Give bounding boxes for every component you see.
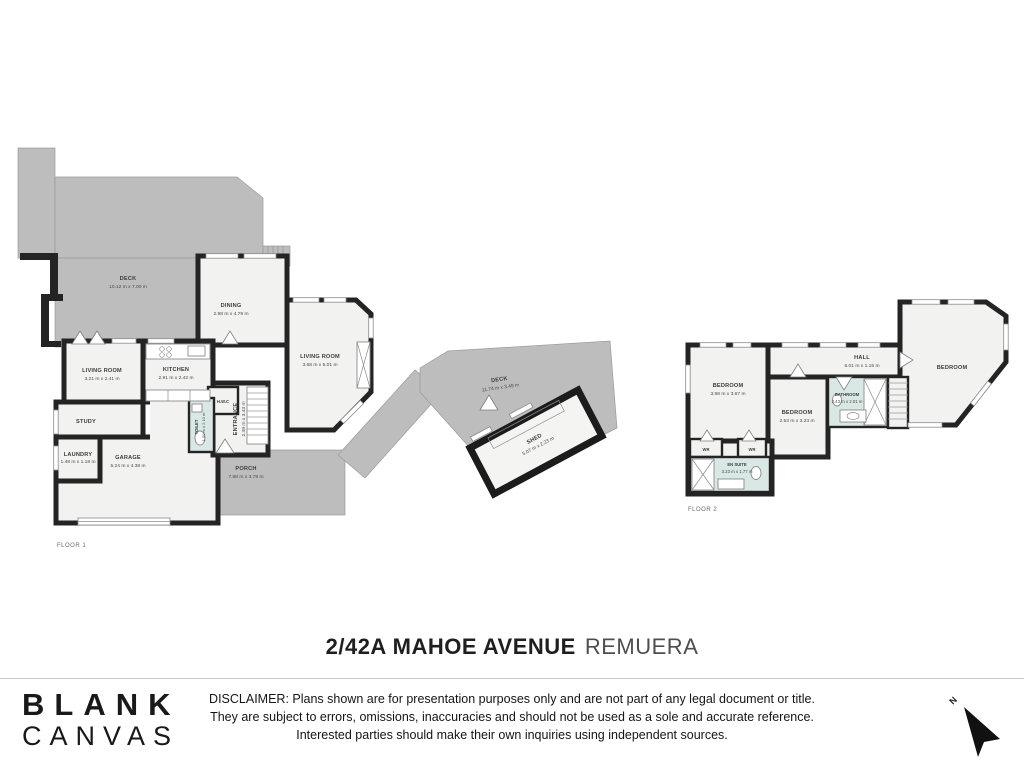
- entrance-dims: 2.49 m x 3.43 m: [241, 401, 247, 436]
- wr1-label: WR: [703, 447, 710, 452]
- fireplace: [357, 342, 370, 388]
- room-laundry: [56, 437, 100, 481]
- logo-line1: BLANK: [22, 689, 181, 720]
- toilet-label: TOILET: [194, 419, 199, 434]
- address-suburb: REMUERA: [585, 634, 699, 659]
- porch-label: PORCH: [235, 466, 256, 472]
- bathroom-dims: 2.43 m x 2.01 m: [832, 399, 863, 404]
- deck-label: DECK: [120, 276, 137, 282]
- bedroom-mid-label: BEDROOM: [782, 410, 813, 416]
- floor2-stairs: [888, 377, 908, 428]
- toilet-dims: 1.00 m x 2.10 m: [201, 412, 206, 441]
- entrance-label: ENTRANCE: [233, 403, 239, 436]
- garage-label: GARAGE: [115, 455, 141, 461]
- kitchen-label: KITCHEN: [163, 367, 189, 373]
- garage-door: [78, 518, 170, 525]
- laundry-label: LAUNDRY: [64, 452, 93, 458]
- bathroom-label: BATHROOM: [835, 392, 860, 397]
- wr2-label: WR: [749, 447, 756, 452]
- ensuite-dims: 3.23 m x 1.77 m: [722, 469, 753, 474]
- deck-dims: 10.12 m x 7.00 m: [109, 284, 147, 290]
- living-left-dims: 3.21 m x 2.41 m: [84, 376, 119, 382]
- living-right-label: LIVING ROOM: [300, 354, 340, 360]
- bedroom-right-label: BEDROOM: [937, 365, 968, 371]
- room-dining: [198, 256, 287, 345]
- study-label: STUDY: [76, 419, 96, 425]
- floor2-title: FLOOR 2: [688, 507, 717, 513]
- floorplan-sheet: DECK 10.12 m x 7.00 m DINING 2.98 m x 4.…: [0, 0, 1024, 768]
- hwc-label: H.W.C: [217, 399, 229, 404]
- bedroom-left-label: BEDROOM: [713, 383, 744, 389]
- living-left-label: LIVING ROOM: [82, 368, 122, 374]
- ensuite-label: EN SUITE: [727, 462, 747, 467]
- disclaimer-line2: They are subject to errors, omissions, i…: [192, 709, 832, 727]
- kitchen-dims: 2.91 m x 2.42 m: [158, 375, 193, 381]
- dining-dims: 2.98 m x 4.79 m: [213, 311, 248, 317]
- north-label: N: [947, 695, 959, 707]
- north-arrow-glyph: [964, 707, 1000, 757]
- logo-line2: CANVAS: [22, 723, 181, 750]
- entrance-stairs: [247, 387, 268, 444]
- garage-dims: 5.24 m x 4.38 m: [110, 463, 145, 469]
- hall-label: HALL: [854, 355, 870, 361]
- hallway-patch: [150, 399, 190, 440]
- blank-canvas-logo: BLANK CANVAS: [22, 689, 181, 750]
- disclaimer-line3: Interested parties should make their own…: [192, 727, 832, 745]
- porch-dims: 7.88 m x 3.78 m: [228, 474, 263, 480]
- laundry-dims: 1.48 m x 1.18 m: [60, 459, 95, 465]
- bedroom-left-dims: 3.98 m x 3.67 m: [710, 391, 745, 397]
- bedroom-mid-dims: 2.53 m x 3.23 m: [779, 418, 814, 424]
- room-bedroom-mid: [768, 377, 828, 457]
- dining-label: DINING: [221, 303, 242, 309]
- room-living-left: [64, 341, 143, 408]
- hall-dims: 6.01 m x 1.15 m: [844, 363, 879, 369]
- address-street: 2/42A MAHOE AVENUE: [326, 634, 576, 659]
- footer: BLANK CANVAS DISCLAIMER: Plans shown are…: [0, 678, 1024, 768]
- disclaimer: DISCLAIMER: Plans shown are for presenta…: [192, 691, 832, 744]
- living-right-dims: 3.68 m x 5.01 m: [302, 362, 337, 368]
- floor1-title: FLOOR 1: [57, 543, 86, 549]
- disclaimer-line1: DISCLAIMER: Plans shown are for presenta…: [192, 691, 832, 709]
- north-arrow: N: [936, 683, 1008, 765]
- room-bedroom-right: [900, 302, 1006, 425]
- address-title: 2/42A MAHOE AVENUEREMUERA: [0, 632, 1024, 662]
- room-hall: [768, 345, 908, 377]
- floorplan-drawing: DECK 10.12 m x 7.00 m DINING 2.98 m x 4.…: [0, 0, 1024, 628]
